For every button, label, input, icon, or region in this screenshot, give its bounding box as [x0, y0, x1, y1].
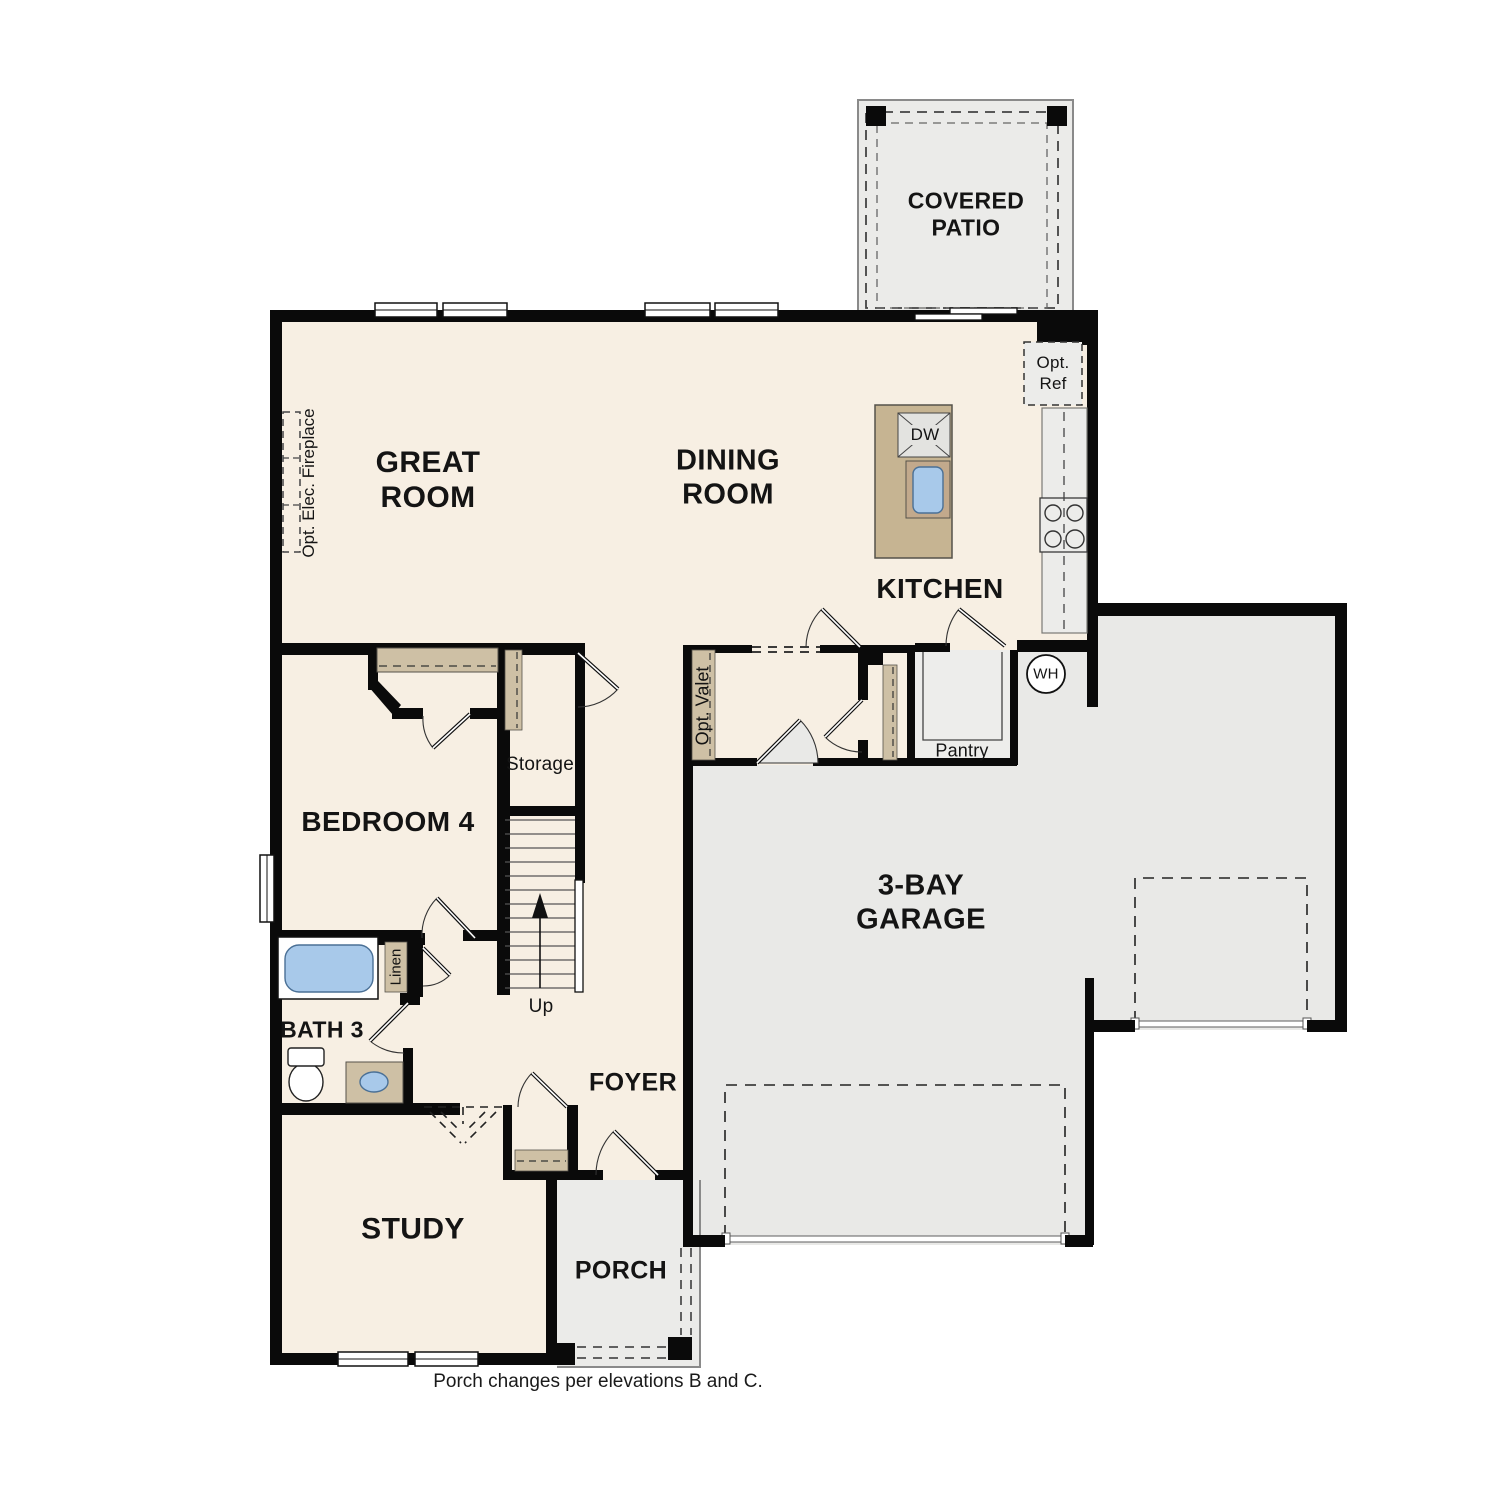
wall-storage-stairs	[497, 806, 585, 816]
wall-foyer-closet-left	[503, 1105, 512, 1180]
label-kitchen: KITCHEN	[876, 573, 1003, 605]
floor-plan-drawing	[0, 0, 1500, 1500]
wall-mudhall-left	[683, 645, 692, 765]
wall-garage-ext-top	[1093, 603, 1347, 616]
wall-kitchen-pantry	[915, 643, 950, 652]
label-bedroom4: BEDROOM 4	[301, 806, 474, 838]
wall-closet-front	[392, 708, 423, 719]
bedroom-closet-shelf	[377, 648, 498, 672]
stair-railing	[575, 880, 583, 992]
wall-pantry-left	[907, 650, 915, 765]
label-great-room: GREAT ROOM	[376, 446, 481, 516]
label-porch: PORCH	[575, 1257, 667, 1286]
floor-plan: COVERED PATIO GREAT ROOM DINING ROOM KIT…	[0, 0, 1500, 1500]
wall-study-bottom	[270, 1353, 557, 1365]
patio-post	[1047, 106, 1067, 126]
label-pantry: Pantry	[935, 741, 988, 762]
label-dishwasher: DW	[911, 425, 940, 445]
label-covered-patio: COVERED PATIO	[908, 187, 1025, 240]
label-dining-room: DINING ROOM	[676, 444, 780, 511]
bathtub	[285, 945, 373, 992]
porch-post	[553, 1343, 575, 1365]
wall-closet-front	[470, 708, 497, 719]
sliding-door-panel	[950, 308, 1017, 314]
label-foyer: FOYER	[589, 1069, 677, 1098]
plan-caption: Porch changes per elevations B and C.	[433, 1371, 763, 1393]
patio-post	[866, 106, 886, 126]
wall-garage-left	[683, 765, 693, 1245]
toilet-bowl	[289, 1063, 323, 1101]
label-study: STUDY	[361, 1213, 465, 1248]
wall-mudhall-block	[858, 645, 883, 665]
label-water-heater: WH	[1033, 665, 1058, 682]
wall-garage-bottom	[683, 1235, 725, 1247]
wall-wh-alcove-top	[1017, 640, 1098, 652]
wall-garage-ext-bottom	[1307, 1020, 1347, 1032]
wall-bath3-right	[403, 1048, 413, 1105]
wall-kitchen-right	[1087, 310, 1098, 652]
wall-garage-ext-right	[1335, 603, 1347, 1032]
sliding-door-panel	[915, 314, 982, 320]
wall-mudcloset-stub	[858, 665, 868, 700]
label-storage: Storage	[506, 754, 574, 776]
wall-wh-alcove-right	[1087, 640, 1098, 707]
wall-foyer-closet-right	[567, 1105, 578, 1180]
left-wing-floor	[270, 645, 692, 1180]
wall-pantry-right	[1010, 650, 1018, 765]
label-opt-valet: Opt. Valet	[693, 667, 714, 746]
label-opt-ref: Opt. Ref	[1037, 352, 1070, 395]
label-garage: 3-BAY GARAGE	[856, 869, 986, 936]
wall-garage-bottom	[1065, 1235, 1093, 1247]
label-bath3: BATH 3	[280, 1017, 364, 1044]
wall-garage-divider	[1085, 978, 1094, 1245]
wall-linen-bottom	[400, 993, 420, 1005]
garage-door	[725, 1236, 1065, 1242]
label-up: Up	[529, 996, 554, 1018]
wall-left	[270, 310, 282, 1365]
wall-study-right	[546, 1177, 557, 1365]
label-opt-fireplace: Opt. Elec. Fireplace	[299, 408, 319, 557]
garage-door	[1135, 1021, 1307, 1027]
storage-shelf	[505, 650, 522, 730]
mud-closet-shelf	[883, 665, 897, 760]
wall-garage-ext-bottom	[1093, 1020, 1135, 1032]
wall-stairs-right	[575, 643, 585, 883]
kitchen-sink	[913, 467, 943, 513]
wall-linen-right	[407, 940, 423, 997]
vanity-sink	[360, 1072, 388, 1092]
porch-post	[668, 1337, 692, 1360]
toilet-tank	[288, 1048, 324, 1066]
label-linen: Linen	[388, 949, 405, 986]
